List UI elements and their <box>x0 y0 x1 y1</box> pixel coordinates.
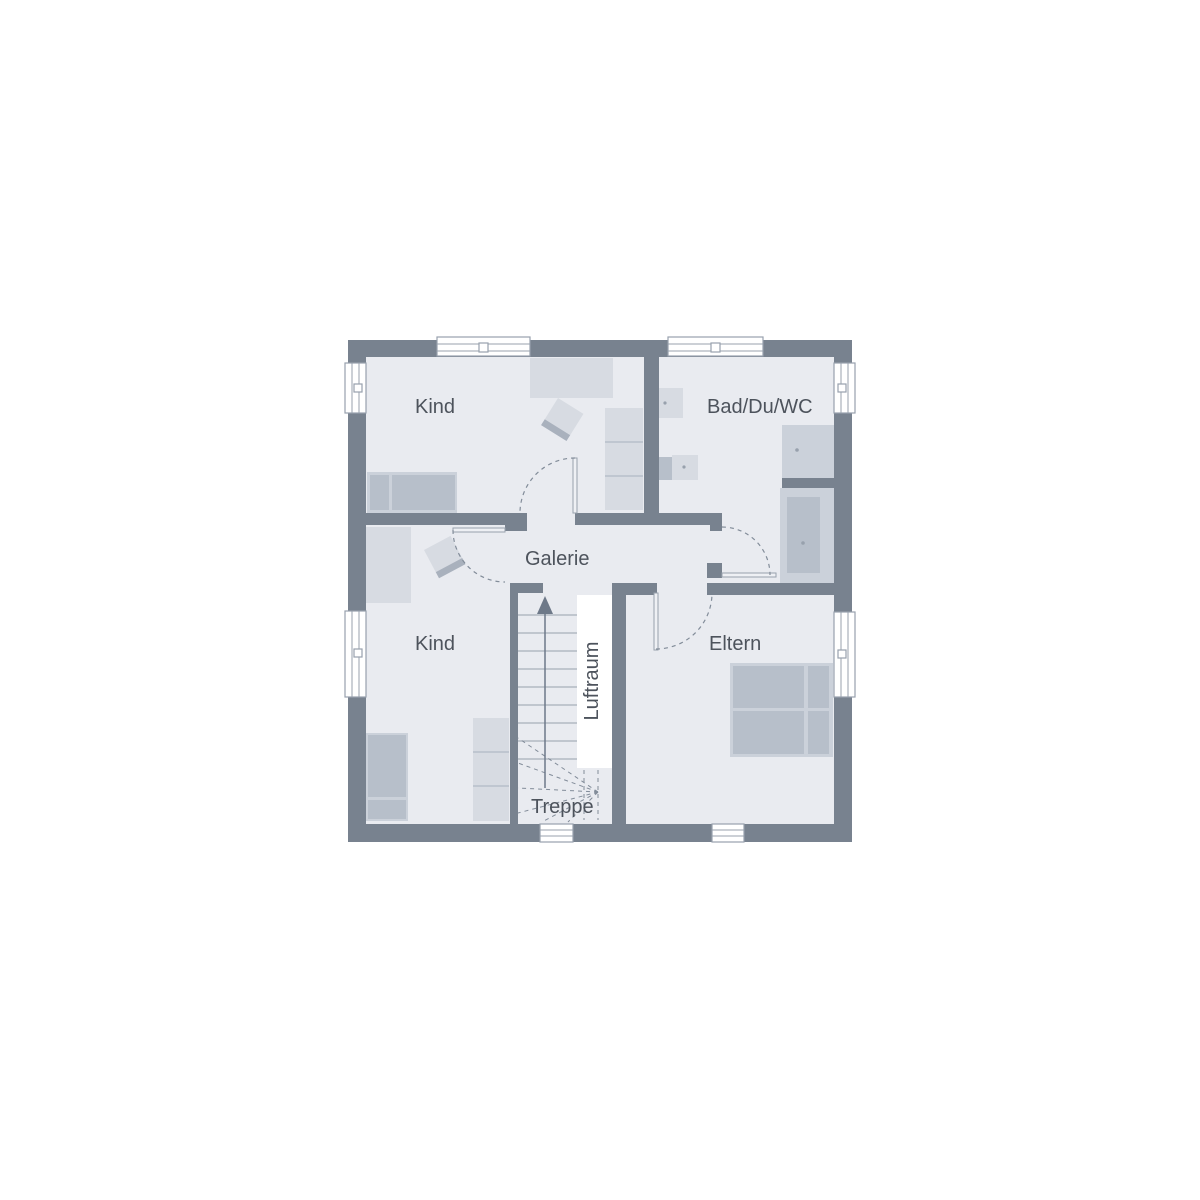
pillow-right <box>808 711 829 754</box>
window-top-bad <box>668 337 763 356</box>
label-treppe: Treppe <box>531 796 594 818</box>
pillow <box>370 475 389 510</box>
wall-eltern-north-right <box>707 583 834 595</box>
window-right-bad <box>834 363 855 413</box>
wall-stair-left <box>510 583 518 824</box>
floor-plan-page: Kind Bad/Du/WC Galerie Kind Eltern Trepp… <box>0 0 1200 1200</box>
label-luftraum: Luftraum <box>581 642 603 721</box>
window-top-kind <box>437 337 530 356</box>
washbasin-counter <box>659 457 672 480</box>
label-eltern: Eltern <box>709 633 761 655</box>
wall-kind-divider <box>366 513 505 525</box>
window-left-kind-top <box>345 363 366 413</box>
wardrobe <box>473 718 509 821</box>
window-right-eltern <box>834 612 855 697</box>
wc <box>659 388 683 418</box>
wall-galerie-north <box>575 513 722 525</box>
mattress <box>368 735 406 797</box>
window-bottom-treppe <box>540 824 573 842</box>
mattress-left <box>733 666 804 708</box>
desk <box>366 527 411 603</box>
wall-jamb-right <box>710 513 722 531</box>
label-kind-bottom: Kind <box>415 633 455 655</box>
mattress-right <box>733 711 804 754</box>
window-bottom-eltern <box>712 824 744 842</box>
wall-jamb-left <box>505 513 527 531</box>
wall-stair-right <box>612 583 626 824</box>
window-left-kind-bottom <box>345 611 366 697</box>
wardrobe <box>605 408 643 510</box>
floor-plan-drawing: Kind Bad/Du/WC Galerie Kind Eltern Trepp… <box>0 0 1200 1200</box>
wall-kind-bad <box>644 357 659 513</box>
furniture-eltern <box>730 663 833 757</box>
pillow-left <box>808 666 829 708</box>
pillow <box>368 800 406 819</box>
mattress <box>392 475 455 510</box>
label-bad: Bad/Du/WC <box>707 396 813 418</box>
shower <box>782 425 834 478</box>
label-galerie: Galerie <box>525 548 589 570</box>
wall-stair-top-block <box>510 583 543 593</box>
bathtub-inner <box>787 497 820 573</box>
desk <box>530 358 613 398</box>
label-kind-top: Kind <box>415 396 455 418</box>
wall-bath-stub <box>707 563 722 578</box>
